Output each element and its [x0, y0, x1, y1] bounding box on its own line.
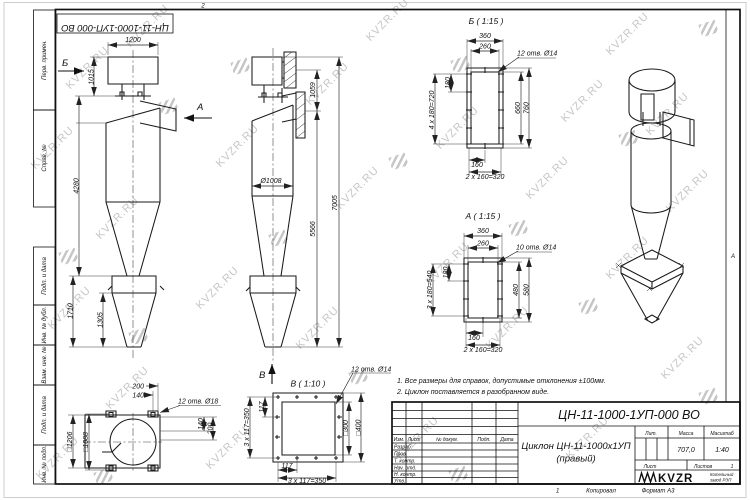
row-label: Н. контр.	[394, 472, 417, 478]
sheet-border	[4, 3, 746, 498]
logo-subtitle-2: завод РЭП	[709, 478, 732, 483]
top-detail-view: 200 140 12 отв. Ø18 140 200 □1206 □1088	[67, 383, 221, 472]
title-block: Изм. Лист № докум. Подп. Дата Разраб. Пр…	[392, 402, 740, 485]
view-letter-a: А	[196, 102, 203, 113]
leader-lines	[498, 57, 519, 72]
drawing-canvas: А 2 1 Копировал Формат А3 Перв. примен. …	[0, 0, 750, 500]
leader-line	[498, 57, 519, 72]
bolt-holes	[463, 257, 503, 323]
detail-title: Б ( 1:15 )	[469, 16, 504, 26]
dim-label: 140	[198, 418, 205, 430]
dim-label: 117	[281, 463, 293, 470]
part-name-line1: Циклон ЦН-11-1000х1УП	[521, 441, 630, 452]
iso-view	[616, 69, 694, 323]
dim-label: 2 x 160=320	[463, 347, 503, 354]
dim-label: 160	[468, 335, 480, 342]
dim-label: 660	[515, 102, 522, 114]
flange-outline	[464, 258, 502, 322]
logo-spring-icon	[639, 473, 656, 482]
row-label: Т. контр.	[394, 459, 416, 465]
dim-label: 580	[524, 284, 531, 296]
dim-label: 117	[259, 400, 266, 412]
dim-label: 140	[132, 393, 144, 400]
dim-label: Ø1008	[259, 178, 281, 185]
flange-outline	[273, 393, 343, 462]
fold-mark: 2	[200, 4, 205, 10]
detail-b-view: Б ( 1:15 ) 360 260 12 отв. Ø14 180 4 x 1…	[429, 16, 557, 181]
dim-label: 200	[208, 423, 215, 436]
margin-label: Подп. и дата	[42, 396, 48, 434]
leader-line	[497, 251, 518, 263]
leader-lines	[146, 386, 180, 413]
list-label: Лист	[643, 464, 657, 470]
dim-label: 1059	[310, 82, 317, 98]
bolt-holes	[466, 67, 504, 149]
dim-label: □300	[343, 420, 350, 436]
zone-letter: А	[730, 254, 735, 260]
view-letter-v: В	[259, 370, 266, 381]
dim-label: 180	[443, 267, 450, 279]
scale-label: Масштаб	[710, 431, 734, 437]
margin-label: Справ. №	[41, 144, 48, 172]
dim-label: 260	[478, 44, 491, 51]
notes: 1. Все размеры для справок, допустимые о…	[396, 377, 606, 396]
extension-lines	[69, 42, 158, 347]
col-header: № докум.	[436, 437, 458, 443]
top-cap	[629, 69, 675, 91]
hopper	[621, 250, 683, 323]
front-outline	[106, 57, 176, 347]
dim-label: 2 x 160=320	[465, 174, 505, 181]
holes-note: 12 отв. Ø18	[178, 399, 218, 406]
flange-outline	[467, 68, 503, 148]
margin-label: Подп. и дата	[42, 257, 48, 295]
extension-lines	[433, 39, 556, 175]
sheet-frame: А 2 1 Копировал Формат А3	[4, 3, 746, 498]
lit-label: Лит.	[644, 431, 657, 437]
row-label: Утв.	[394, 479, 405, 485]
part-name-line2: (правый)	[556, 454, 595, 465]
dim-label: 4280	[74, 178, 81, 194]
dim-label: 260	[476, 241, 489, 248]
dim-label: 1015	[89, 69, 96, 85]
note-line: 2. Циклон поставляется в разобранном вид…	[396, 388, 549, 396]
mass-label: Масса	[679, 431, 694, 437]
dim-label: 1710	[68, 303, 75, 319]
col-header: Лист	[407, 437, 421, 443]
dim-label: □400	[356, 419, 363, 435]
margin-column: Перв. примен. Справ. № Подп. и дата Инв.…	[34, 10, 56, 484]
bolt-marks	[616, 263, 684, 291]
note-line: 1. Все размеры для справок, допустимые о…	[397, 377, 606, 385]
detail-v-view: В ( 1:10 ) 12 отв. Ø14 117 3 x 117=350 1…	[244, 367, 391, 486]
dim-label: 160	[471, 162, 483, 169]
dim-label: 360	[477, 228, 489, 235]
margin-label: Инв. № подл.	[41, 445, 48, 482]
margin-label: Взам. инв. №	[41, 346, 48, 384]
row-label: Разраб.	[394, 445, 412, 451]
format-label: Формат А3	[642, 489, 675, 495]
dim-label: 480	[513, 284, 520, 296]
dim-label: 4 x 180=720	[429, 91, 436, 130]
detail-title: В ( 1:10 )	[291, 379, 326, 389]
dim-label: 180	[445, 77, 452, 89]
dim-label: 3 x 117=350	[244, 408, 251, 446]
col-header: Подп.	[477, 437, 490, 443]
extension-lines	[247, 373, 391, 482]
dim-label: 1200	[125, 37, 141, 44]
sheet-no-note: 1	[556, 489, 559, 495]
listov-value: 1	[731, 464, 734, 470]
dim-label: 5566	[310, 221, 317, 237]
holes-note: 12 отв. Ø14	[517, 51, 557, 58]
drawing-sheet: { "watermark": {"text": "KVZR.RU"}, "she…	[0, 0, 750, 500]
holes-note: 10 отв. Ø14	[516, 245, 556, 252]
margin-label: Перв. примен.	[42, 40, 48, 80]
cylinder-cone	[631, 131, 671, 259]
leader-line	[160, 406, 180, 413]
col-header: Изм.	[394, 437, 405, 443]
top-stamp-text: ЦН-11-1000-1УП-000 ВО	[61, 22, 169, 33]
dim-label: 3 x 180=540	[427, 271, 434, 310]
scale-value: 1:40	[715, 447, 729, 454]
logo-subtitle-1: Котельный	[710, 472, 734, 477]
corner-bolt-plates	[106, 411, 158, 471]
leader-lines	[497, 251, 518, 263]
row-label: Пров.	[394, 452, 407, 458]
dim-label: 360	[479, 33, 491, 40]
row-label: Нач. отд.	[394, 466, 416, 472]
dim-label: □1206	[67, 431, 74, 451]
cylinder-top	[631, 123, 671, 139]
top-stamp: ЦН-11-1000-1УП-000 ВО	[57, 14, 173, 33]
dimension-lines	[73, 45, 158, 347]
doc-number: ЦН-11-1000-1УП-000 ВО	[558, 408, 700, 422]
leader-lines	[336, 373, 353, 404]
dim-label: 7005	[332, 195, 339, 211]
flange-outline	[85, 415, 160, 468]
dim-label: 760	[524, 102, 531, 114]
dim-label: □1088	[83, 432, 90, 452]
dim-label: 200	[131, 384, 144, 391]
dim-label: 1305	[98, 312, 105, 328]
listov-label: Листов	[693, 464, 713, 470]
holes-note: 12 отв. Ø14	[351, 367, 391, 374]
margin-label: Инв. № дубл.	[41, 307, 48, 344]
copied-label: Копировал	[586, 489, 616, 495]
mass-value: 707,0	[677, 447, 695, 454]
front-view: 1200 1015 4280 1710 1305 Б А	[58, 37, 212, 358]
logo-text: KVZR	[658, 473, 693, 485]
side-outline	[246, 52, 305, 347]
bolt-holes	[275, 395, 342, 460]
dim-label: 3 x 117=350	[288, 478, 326, 485]
col-header: Дата	[499, 437, 513, 443]
view-letter-b: Б	[62, 58, 68, 69]
leader-line	[336, 373, 353, 404]
detail-title: А ( 1:15 )	[465, 211, 501, 221]
side-view: Ø1008 1059 5566 7005 В	[246, 48, 343, 384]
detail-a-view: А ( 1:15 ) 360 260 10 отв. Ø14 180 3 x 1…	[427, 211, 556, 354]
